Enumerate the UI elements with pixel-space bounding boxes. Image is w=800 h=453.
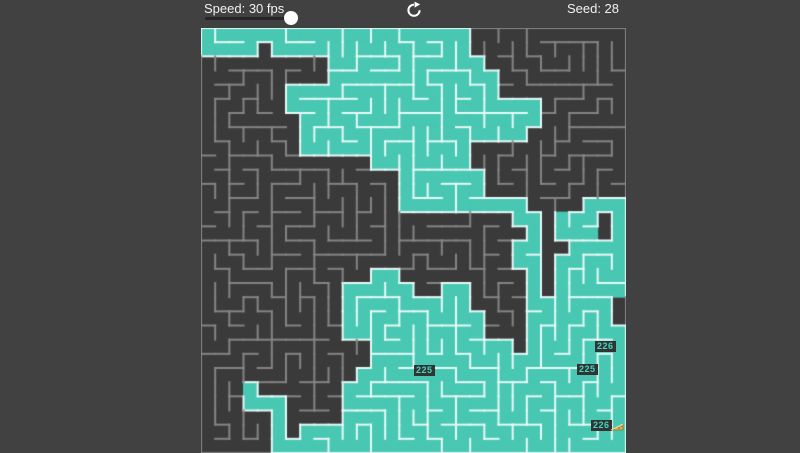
app-container: Speed: 30 fps Seed: 28 225 226 225 226 [201,0,626,453]
toolbar: Speed: 30 fps Seed: 28 [201,0,626,28]
distance-label: 226 [591,420,612,431]
maze-container: 225 226 225 226 [201,28,626,453]
refresh-button[interactable] [404,1,424,21]
distance-label: 225 [414,365,435,376]
distance-label: 225 [577,364,598,375]
goal-cheese-icon [610,419,624,433]
refresh-icon [405,7,423,22]
speed-slider[interactable] [205,11,303,26]
seed-label: Seed: 28 [567,1,619,16]
distance-label: 226 [595,341,616,352]
maze-canvas [201,28,626,453]
slider-knob[interactable] [284,11,298,25]
